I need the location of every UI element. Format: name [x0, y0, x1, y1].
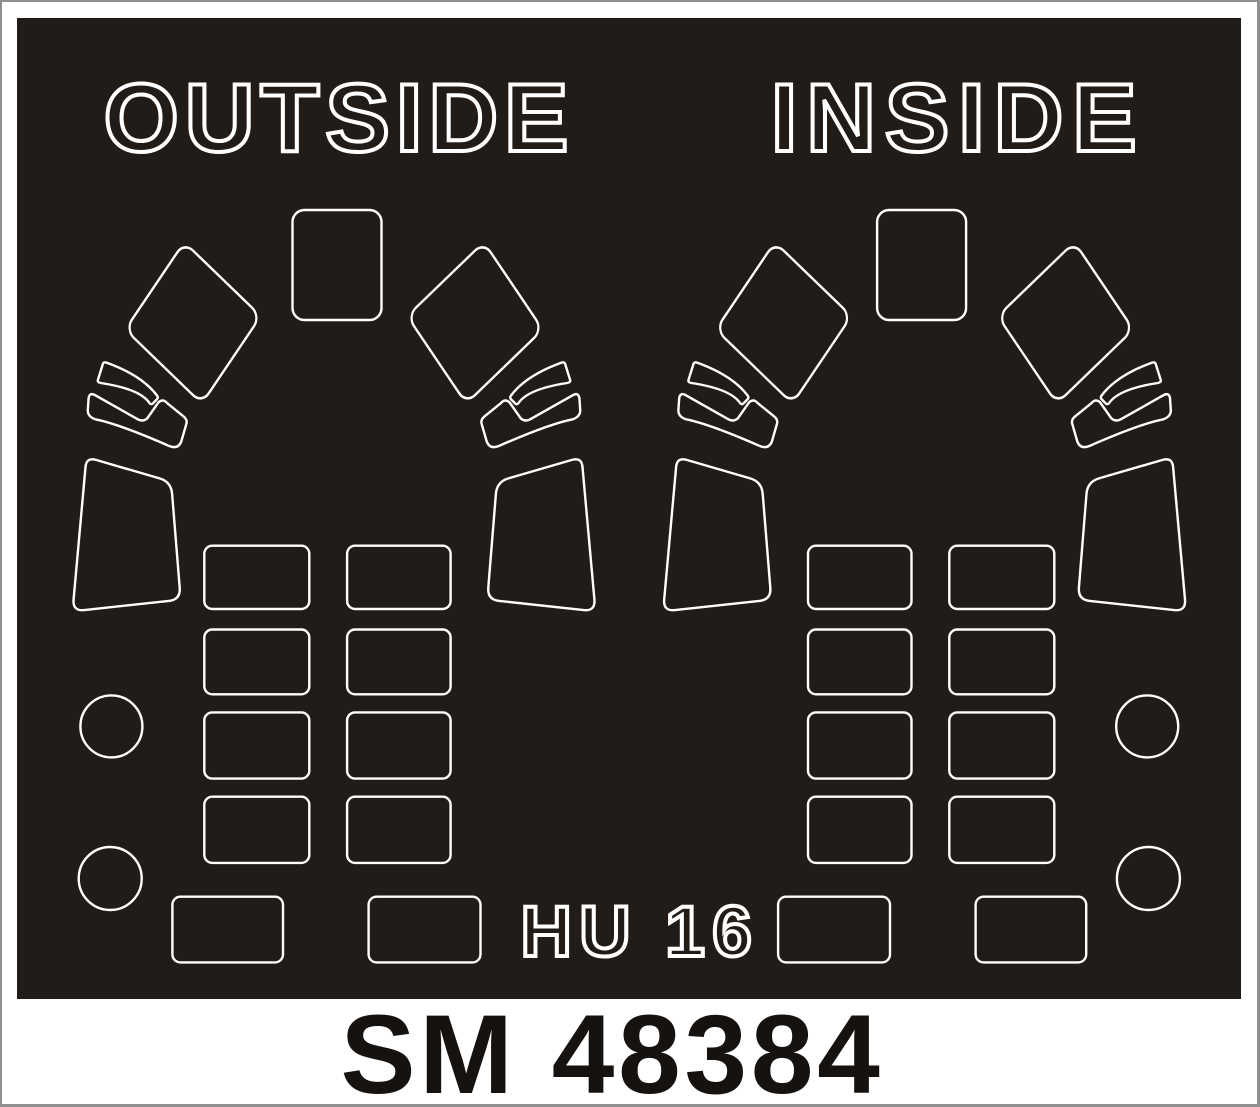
svg-text:OUTSIDE: OUTSIDE: [104, 63, 575, 172]
svg-text:INSIDE: INSIDE: [771, 63, 1146, 172]
svg-text:SM 48384: SM 48384: [340, 991, 883, 1107]
svg-text:HU 16: HU 16: [521, 893, 760, 972]
